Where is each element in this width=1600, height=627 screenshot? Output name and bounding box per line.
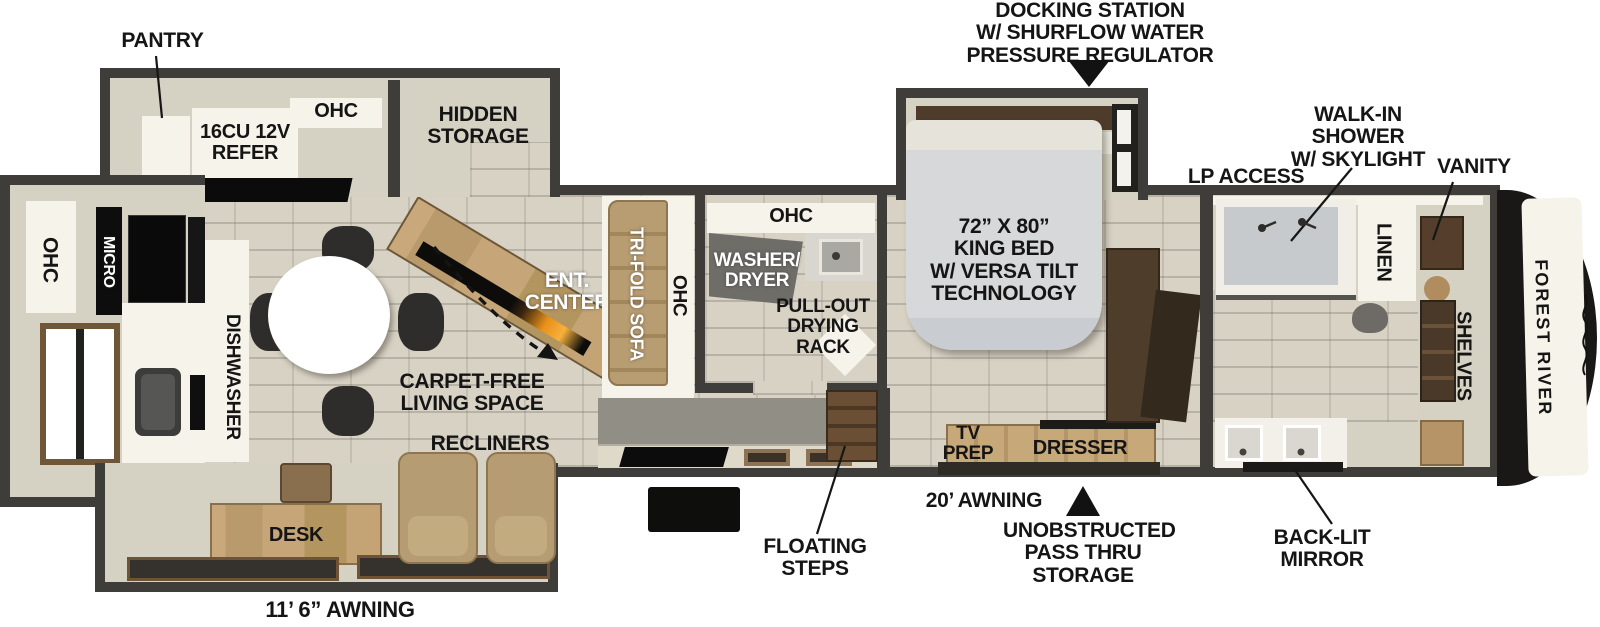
wall-oven: [188, 217, 205, 303]
dining-table: [268, 256, 390, 374]
brand-label: FOREST RIVER: [1530, 216, 1556, 460]
dining-chair: [398, 293, 444, 351]
trivet: [744, 449, 790, 466]
hidden-storage-floor: [470, 142, 550, 197]
mirror-leader-line: [1295, 470, 1332, 524]
front-cap: FOREST RIVER: [1497, 190, 1597, 486]
window-pane: [1117, 110, 1131, 144]
shower-label: WALK-IN SHOWER W/ SKYLIGHT: [1290, 104, 1426, 171]
shelves-unit: [1420, 300, 1456, 402]
micro-label: MICRO: [100, 227, 117, 297]
hidden-storage-label: HIDDEN STORAGE: [410, 104, 546, 149]
desk-chair: [280, 463, 332, 503]
dishwasher-label: DISHWASHER: [216, 292, 242, 462]
awning116-label: 11’ 6” AWNING: [252, 598, 428, 622]
dining-chair: [322, 386, 374, 436]
bedroom-window: [1112, 104, 1138, 192]
toilet: [1352, 303, 1388, 333]
floating-steps: [826, 390, 878, 462]
recliner-cushion: [495, 516, 547, 556]
shower-pan: [1224, 207, 1338, 285]
carpet-free-label: CARPET-FREE LIVING SPACE: [382, 371, 562, 416]
recliner-cushion: [408, 516, 468, 556]
ohc-top-label: OHC: [290, 101, 382, 122]
dresser-label: DRESSER: [1020, 438, 1140, 459]
back-lit-mirror: [1243, 462, 1343, 472]
left-slide: OHC MICRO: [0, 175, 205, 507]
window-pane: [1117, 152, 1131, 186]
backlit-mirror-label: BACK-LIT MIRROR: [1232, 527, 1412, 572]
entry-step: [648, 487, 740, 532]
recliner: [398, 452, 478, 564]
laundry-sink-counter: [805, 233, 877, 281]
bedroom-step-wall: [877, 388, 890, 469]
docking-arrow: [1068, 60, 1110, 87]
drying-rack-label: PULL-OUT DRYING RACK: [763, 297, 883, 358]
floorplan: DISHWASHER ENT. CENTER TRI-FOLD SOFA OHC…: [0, 0, 1600, 627]
vanity-stool: [1424, 276, 1450, 302]
bathroom-tile: [1213, 290, 1418, 422]
pantry-cabinet: [142, 116, 190, 182]
slide-window: [127, 557, 339, 581]
sofa-ohc-label: OHC: [668, 248, 688, 344]
front-cap-band: FOREST RIVER: [1521, 197, 1588, 476]
walk-in-shower: [1216, 199, 1356, 300]
passthru-arrow: [1066, 486, 1100, 516]
bathroom-sink: [1225, 425, 1263, 461]
refer-label: 16CU 12V REFER: [192, 122, 298, 165]
desk-label: DESK: [210, 525, 382, 546]
bathroom-sink: [1283, 425, 1321, 461]
vanity-label: VANITY: [1424, 156, 1524, 178]
oven: [128, 215, 186, 303]
bathroom-wall: [1200, 195, 1213, 467]
kitchen-sink: [135, 368, 181, 436]
pantry-label: PANTRY: [110, 30, 215, 52]
sink-basin: [141, 374, 175, 430]
corner-cabinet: [1420, 420, 1464, 466]
hidden-storage-wall: [388, 80, 400, 197]
sink-counter: [1215, 418, 1347, 468]
shelves-label: SHELVES: [1452, 304, 1473, 408]
ohc-left-label: OHC: [38, 225, 60, 295]
range-hood: [195, 178, 352, 202]
lp-access-label: LP ACCESS: [1184, 166, 1308, 188]
dishwasher-front: [190, 375, 205, 430]
king-bed-label: 72” X 80” KING BED W/ VERSA TILT TECHNOL…: [912, 216, 1096, 306]
awning20-label: 20’ AWNING: [912, 490, 1056, 512]
washer-dryer-label: WASHER/ DRYER: [707, 251, 807, 292]
vanity-cabinet: [1420, 216, 1464, 270]
kitchen-window: [40, 323, 120, 465]
sofa-label: TRI-FOLD SOFA: [626, 208, 645, 380]
window-sash: [76, 329, 84, 459]
passthru-label: UNOBSTRUCTED PASS THRU STORAGE: [1003, 520, 1163, 587]
recliner: [486, 452, 556, 564]
tv-prep-label: TV PREP: [930, 424, 1006, 465]
floating-steps-label: FLOATING STEPS: [758, 536, 872, 581]
cooktop: [619, 447, 729, 467]
laundry-door-opening: [753, 381, 827, 395]
laundry-room: OHC WASHER/ DRYER PULL-OUT DRYING RACK: [695, 185, 887, 393]
docking-station-label: DOCKING STATION W/ SHURFLOW WATER PRESSU…: [960, 0, 1220, 67]
laundry-sink: [819, 239, 863, 275]
linen-label: LINEN: [1372, 212, 1393, 292]
laundry-ohc-label: OHC: [707, 206, 875, 227]
